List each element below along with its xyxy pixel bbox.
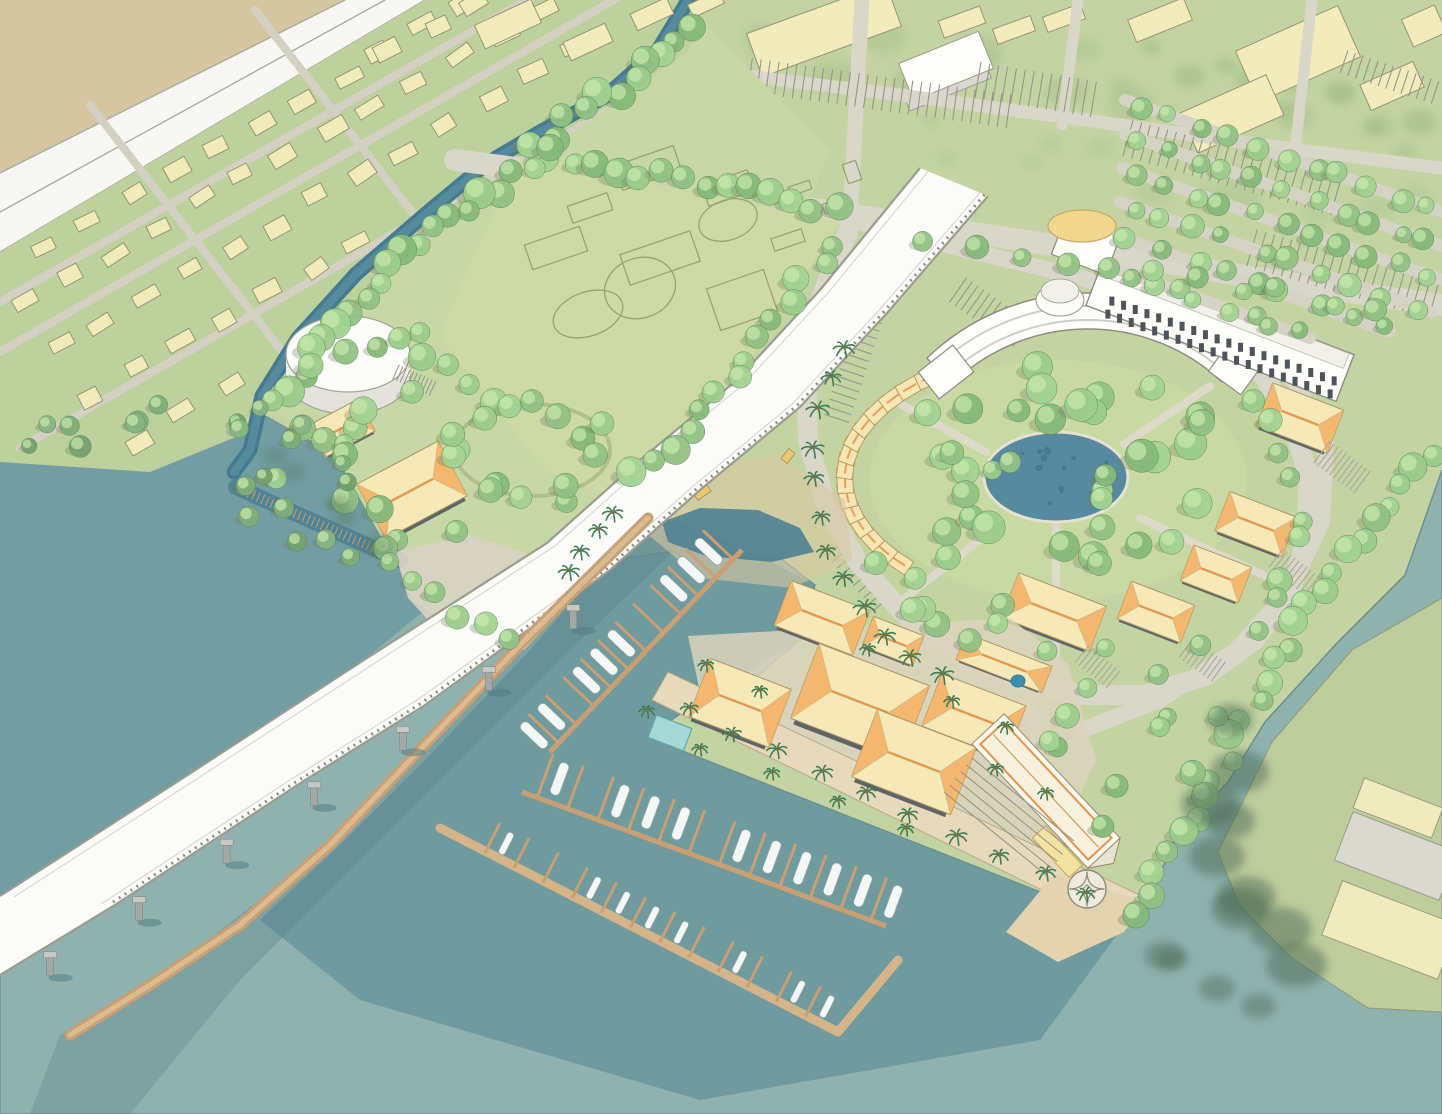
- scene-svg: [0, 0, 1442, 1114]
- village-fountain: [1011, 675, 1025, 687]
- hotel-drum-top: [1041, 279, 1079, 303]
- site-plan-rendering: [0, 0, 1442, 1114]
- hotel-tower-roof: [1048, 210, 1116, 242]
- layers-root: [0, 0, 1442, 1114]
